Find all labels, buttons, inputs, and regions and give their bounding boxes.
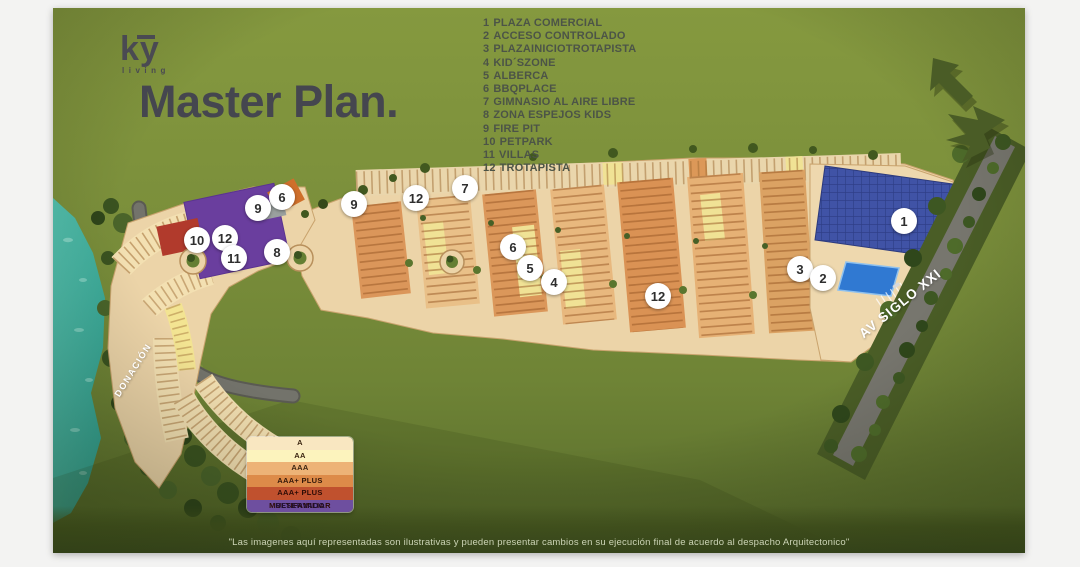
map-marker-9: 9	[341, 191, 367, 217]
amenity-label: PLAZAINICIOTROTAPISTA	[493, 43, 636, 55]
amenity-label: PLAZA COMERCIAL	[493, 17, 602, 29]
legend-row: AA	[247, 450, 353, 463]
amenity-number: 7	[483, 96, 489, 108]
page-title: Master Plan.	[139, 76, 398, 128]
amenity-label: BBQPLACE	[493, 83, 556, 95]
page: { "logo": { "text": "ky", "subtext": "li…	[0, 0, 1080, 567]
amenity-label: PETPARK	[500, 136, 553, 148]
amenity-item-4: 4KID´SZONE	[483, 57, 636, 70]
amenity-label: TROTAPISTA	[500, 162, 571, 174]
amenity-label: ZONA ESPEJOS KIDS	[493, 109, 611, 121]
amenity-number: 5	[483, 70, 489, 82]
map-marker-10: 10	[184, 227, 210, 253]
map-marker-7: 7	[452, 175, 478, 201]
amenity-number: 10	[483, 136, 496, 148]
amenity-label: ACCESO CONTROLADO	[493, 30, 625, 42]
map-marker-6: 6	[269, 184, 295, 210]
amenity-number: 3	[483, 43, 489, 55]
amenity-item-3: 3PLAZAINICIOTROTAPISTA	[483, 43, 636, 56]
amenity-item-1: 1PLAZA COMERCIAL	[483, 17, 636, 30]
amenity-label: VILLAS	[499, 149, 539, 161]
amenities-list: 1PLAZA COMERCIAL2ACCESO CONTROLADO3PLAZA…	[483, 17, 636, 175]
pool	[838, 262, 899, 296]
amenity-number: 8	[483, 109, 489, 121]
legend-row: AAA	[247, 462, 353, 475]
amenity-item-12: 12TROTAPISTA	[483, 162, 636, 175]
legend-row: AAA+ PLUS MULTIFAMILIAR	[247, 487, 353, 500]
amenity-item-6: 6BBQPLACE	[483, 83, 636, 96]
map-marker-2: 2	[810, 265, 836, 291]
amenity-item-8: 8ZONA ESPEJOS KIDS	[483, 109, 636, 122]
amenity-number: 4	[483, 57, 489, 69]
disclaimer-text: "Las imagenes aquí representadas son ilu…	[53, 537, 1025, 548]
map-marker-9: 9	[245, 195, 271, 221]
map-marker-11: 11	[221, 245, 247, 271]
map-marker-8: 8	[264, 239, 290, 265]
amenity-number: 12	[483, 162, 496, 174]
amenity-item-10: 10PETPARK	[483, 136, 636, 149]
amenity-item-2: 2ACCESO CONTROLADO	[483, 30, 636, 43]
amenity-number: 11	[483, 149, 495, 161]
amenity-item-11: 11VILLAS	[483, 149, 636, 162]
amenity-number: 6	[483, 83, 489, 95]
amenity-item-5: 5ALBERCA	[483, 70, 636, 83]
map-marker-1: 1	[891, 208, 917, 234]
amenity-label: GIMNASIO AL AIRE LIBRE	[493, 96, 635, 108]
amenity-label: FIRE PIT	[493, 123, 540, 135]
ky-logo: ky living	[120, 34, 170, 75]
amenity-item-7: 7GIMNASIO AL AIRE LIBRE	[483, 96, 636, 109]
map-marker-4: 4	[541, 269, 567, 295]
legend-row: AAA+ PLUS	[247, 475, 353, 488]
amenity-item-9: 9FIRE PIT	[483, 123, 636, 136]
amenity-number: 1	[483, 17, 489, 29]
ky-logo-bar-icon	[137, 35, 155, 39]
map-marker-5: 5	[517, 255, 543, 281]
masterplan-image: ky living Master Plan. 1PLAZA COMERCIAL2…	[53, 8, 1025, 553]
map-marker-12: 12	[403, 185, 429, 211]
legend-row: RESERVADO	[247, 500, 353, 513]
lot-type-legend: AAAAAAAAA+ PLUSAAA+ PLUS MULTIFAMILIARRE…	[247, 437, 353, 512]
amenity-label: KID´SZONE	[493, 57, 555, 69]
amenity-number: 2	[483, 30, 489, 42]
amenity-number: 9	[483, 123, 489, 135]
legend-row: A	[247, 437, 353, 450]
amenity-label: ALBERCA	[493, 70, 548, 82]
map-marker-12: 12	[645, 283, 671, 309]
